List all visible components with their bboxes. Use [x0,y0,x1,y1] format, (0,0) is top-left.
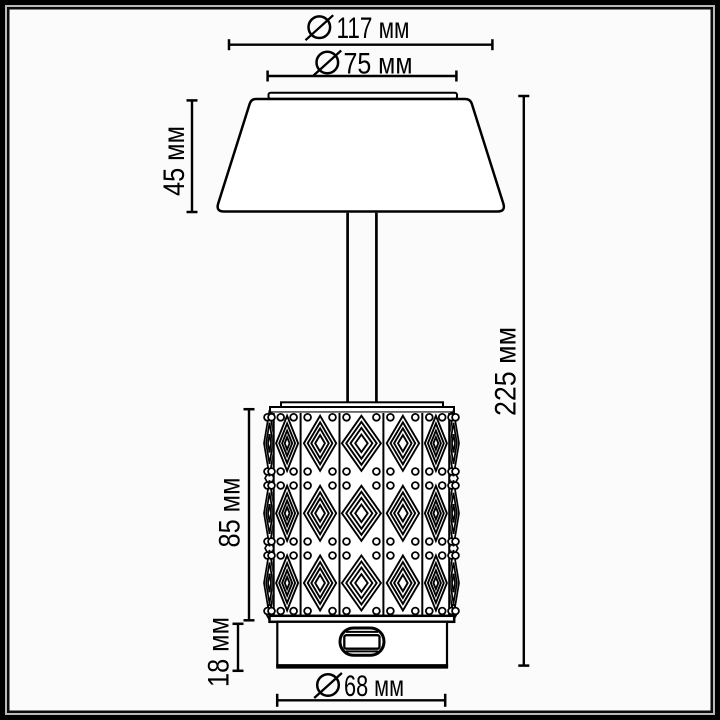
svg-text:18 мм: 18 мм [203,617,236,687]
svg-text:117 мм: 117 мм [337,12,410,45]
svg-text:45 мм: 45 мм [158,126,191,196]
svg-text:68 мм: 68 мм [344,670,404,703]
svg-text:75 мм: 75 мм [344,48,413,81]
svg-text:85 мм: 85 мм [214,478,247,548]
svg-text:225 мм: 225 мм [490,327,523,416]
